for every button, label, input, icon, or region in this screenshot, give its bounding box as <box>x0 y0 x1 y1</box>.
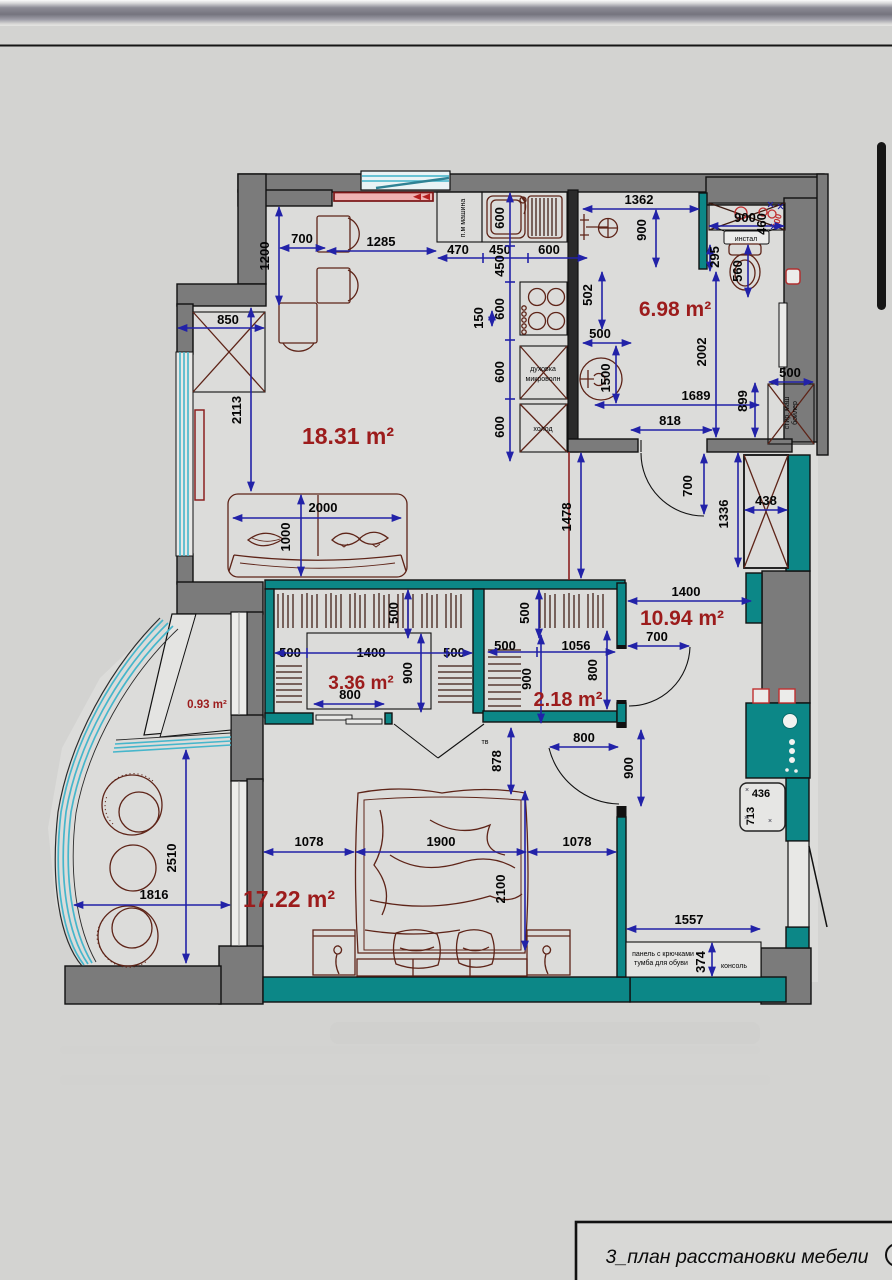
svg-text:500: 500 <box>589 326 611 341</box>
svg-text:1478: 1478 <box>559 503 574 532</box>
svg-text:10.94 m²: 10.94 m² <box>640 607 724 630</box>
svg-text:×: × <box>744 815 748 822</box>
svg-text:17.22 m²: 17.22 m² <box>243 886 335 912</box>
svg-text:1200: 1200 <box>257 242 272 271</box>
svg-text:3.36 m²: 3.36 m² <box>328 673 393 694</box>
svg-text:850: 850 <box>217 312 239 327</box>
svg-text:700: 700 <box>291 231 313 246</box>
svg-text:тумба для обуви: тумба для обуви <box>634 959 688 967</box>
svg-text:899: 899 <box>735 390 750 412</box>
svg-text:800: 800 <box>585 659 600 681</box>
svg-text:900: 900 <box>621 757 636 779</box>
svg-text:800: 800 <box>573 730 595 745</box>
svg-text:1362: 1362 <box>625 192 654 207</box>
svg-text:духовка: духовка <box>530 366 556 373</box>
svg-text:3_план расстановки мебели: 3_план расстановки мебели <box>606 1246 869 1268</box>
svg-text:700: 700 <box>646 629 668 644</box>
svg-text:инстал: инстал <box>735 236 757 243</box>
svg-text:900: 900 <box>634 219 649 241</box>
svg-text:стир. маш: стир. маш <box>784 396 791 429</box>
svg-text:502: 502 <box>580 284 595 306</box>
svg-text:2000: 2000 <box>309 500 338 515</box>
svg-text:1056: 1056 <box>562 638 591 653</box>
svg-text:микроволн: микроволн <box>526 376 561 383</box>
svg-text:п.м машина: п.м машина <box>460 199 467 238</box>
svg-text:150: 150 <box>471 307 486 329</box>
svg-text:0.93 m²: 0.93 m² <box>187 699 227 711</box>
svg-text:1336: 1336 <box>716 500 731 529</box>
svg-text:2113: 2113 <box>229 396 244 424</box>
svg-text:436: 436 <box>752 788 770 800</box>
svg-text:460: 460 <box>754 213 769 235</box>
svg-text:900: 900 <box>519 668 534 690</box>
svg-text:818: 818 <box>659 413 681 428</box>
svg-text:1078: 1078 <box>295 834 324 849</box>
svg-text:1557: 1557 <box>675 912 704 927</box>
svg-text:600: 600 <box>538 242 560 257</box>
svg-text:бойлер: бойлер <box>791 401 799 425</box>
svg-text:2510: 2510 <box>164 844 179 873</box>
svg-text:1000: 1000 <box>278 523 293 552</box>
svg-text:600: 600 <box>492 298 507 320</box>
svg-text:1500: 1500 <box>598 364 613 393</box>
svg-text:консоль: консоль <box>721 963 747 970</box>
svg-text:панель с крючками: панель с крючками <box>632 951 694 958</box>
svg-text:470: 470 <box>447 242 469 257</box>
svg-text:878: 878 <box>489 750 504 772</box>
svg-text:295: 295 <box>707 246 722 268</box>
svg-text:900: 900 <box>734 210 756 225</box>
svg-text:1689: 1689 <box>682 388 711 403</box>
svg-text:900: 900 <box>400 662 415 684</box>
svg-text:438: 438 <box>755 493 777 508</box>
svg-text:холод: холод <box>533 426 552 433</box>
svg-text:500: 500 <box>386 602 401 624</box>
svg-text:2.18 m²: 2.18 m² <box>534 689 603 711</box>
svg-text:×: × <box>745 787 749 794</box>
svg-text:500: 500 <box>779 365 801 380</box>
svg-text:1400: 1400 <box>672 584 701 599</box>
svg-text:тв: тв <box>482 739 489 746</box>
svg-text:18.31 m²: 18.31 m² <box>302 423 394 449</box>
svg-text:600: 600 <box>492 361 507 383</box>
svg-text:450: 450 <box>489 242 511 257</box>
svg-text:1285: 1285 <box>367 234 396 249</box>
svg-text:1900: 1900 <box>427 834 456 849</box>
svg-text:×: × <box>768 818 772 825</box>
svg-text:700: 700 <box>680 475 695 497</box>
svg-text:500: 500 <box>517 602 532 624</box>
svg-text:560: 560 <box>730 260 745 282</box>
svg-text:500: 500 <box>494 638 516 653</box>
svg-text:450: 450 <box>492 255 507 277</box>
svg-text:374: 374 <box>693 950 708 972</box>
svg-text:6.98 m²: 6.98 m² <box>639 298 711 321</box>
svg-text:1816: 1816 <box>140 887 169 902</box>
svg-text:600: 600 <box>492 416 507 438</box>
svg-text:2002: 2002 <box>694 338 709 367</box>
svg-text:600: 600 <box>492 207 507 229</box>
svg-text:2100: 2100 <box>493 875 508 904</box>
svg-text:1078: 1078 <box>563 834 592 849</box>
